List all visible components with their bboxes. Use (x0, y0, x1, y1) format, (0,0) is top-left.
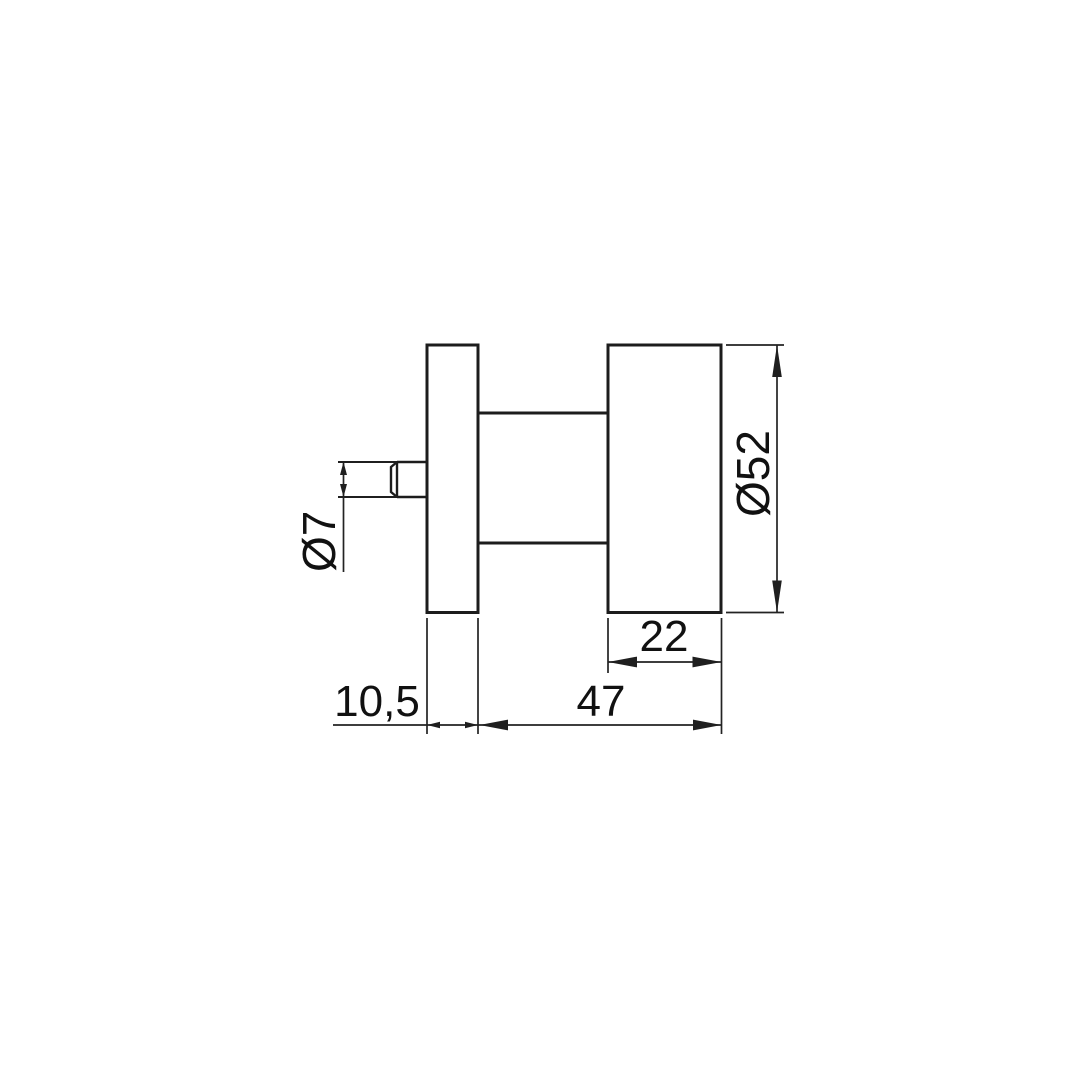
arrowhead-right-large (693, 720, 722, 731)
dimension-label-knob-diameter: Ø52 (727, 430, 779, 517)
arrowhead-up (772, 345, 782, 377)
dimension-label-knob-depth: 22 (640, 612, 689, 661)
arrowhead-right-small (465, 722, 478, 728)
arrowhead-up (340, 462, 347, 475)
dimension-label-rose-thickness: 10,5 (334, 677, 420, 726)
knob-head-outline (608, 345, 721, 613)
arrowhead-right (693, 657, 722, 668)
dimension-knob-diameter: Ø52 (726, 345, 784, 613)
arrowhead-left (608, 657, 637, 668)
part-outline (391, 345, 721, 613)
arrowhead-down (772, 581, 782, 613)
technical-drawing-canvas: Ø7 Ø52 22 (0, 0, 1080, 1080)
dimension-label-projection: 47 (577, 677, 626, 726)
arrowhead-down (340, 484, 347, 497)
drawing-svg: Ø7 Ø52 22 (0, 0, 1080, 1080)
arrowhead-left-large (480, 720, 509, 731)
arrowhead-left-small (427, 722, 440, 728)
rose-plate-outline (427, 345, 478, 613)
spindle-outline (391, 462, 427, 497)
dimension-spindle-diameter: Ø7 (293, 462, 397, 572)
dimension-label-spindle-diameter: Ø7 (293, 511, 345, 572)
